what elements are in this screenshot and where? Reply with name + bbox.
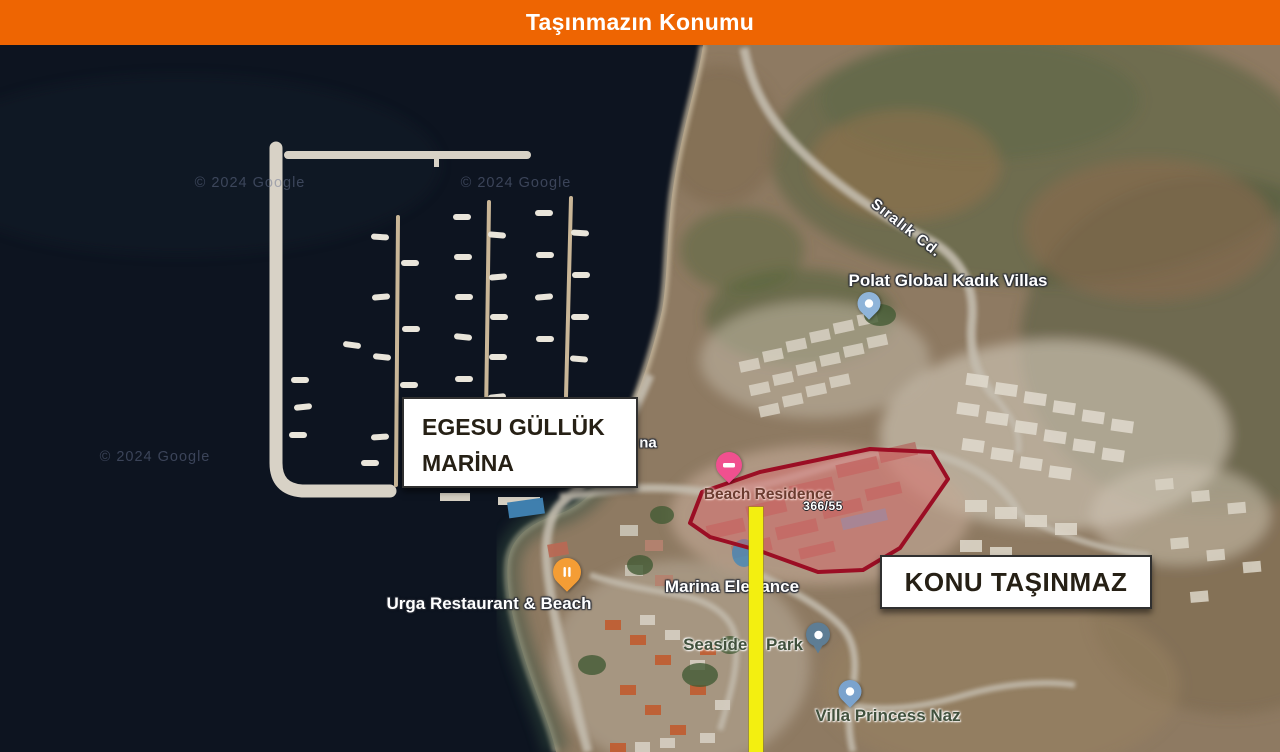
subject-callout-box: KONU TAŞINMAZ xyxy=(880,555,1152,609)
report-slide: Taşınmazın Konumu xyxy=(0,0,1280,752)
lodging-pin-polat xyxy=(858,292,881,315)
dot-icon xyxy=(846,687,855,696)
subject-marker-line xyxy=(749,507,763,752)
map-attribution: © 2024 Google xyxy=(195,175,306,191)
marina-callout-line2: MARİNA xyxy=(422,445,626,481)
bed-icon xyxy=(723,461,735,469)
map-attribution: © 2024 Google xyxy=(461,175,572,191)
marina-callout-box: EGESU GÜLLÜK MARİNA xyxy=(402,397,638,488)
fork-knife-icon xyxy=(561,566,573,578)
dot-icon xyxy=(814,630,823,639)
lodging-pin-villa-princess xyxy=(839,680,862,703)
satellite-scene xyxy=(0,45,1280,752)
restaurant-pin xyxy=(553,558,581,586)
lodging-pin-beach-residence xyxy=(716,452,742,478)
marina-callout-line1: EGESU GÜLLÜK xyxy=(422,409,626,445)
map-attribution: © 2024 Google xyxy=(100,449,211,465)
satellite-map-image: © 2024 Google © 2024 Google © 2024 Googl… xyxy=(0,45,1280,752)
slide-title-bar: Taşınmazın Konumu xyxy=(0,0,1280,45)
park-pin-seaside xyxy=(806,623,830,654)
page-title: Taşınmazın Konumu xyxy=(526,9,754,36)
dot-icon xyxy=(865,299,874,308)
subject-callout-label: KONU TAŞINMAZ xyxy=(905,567,1128,598)
